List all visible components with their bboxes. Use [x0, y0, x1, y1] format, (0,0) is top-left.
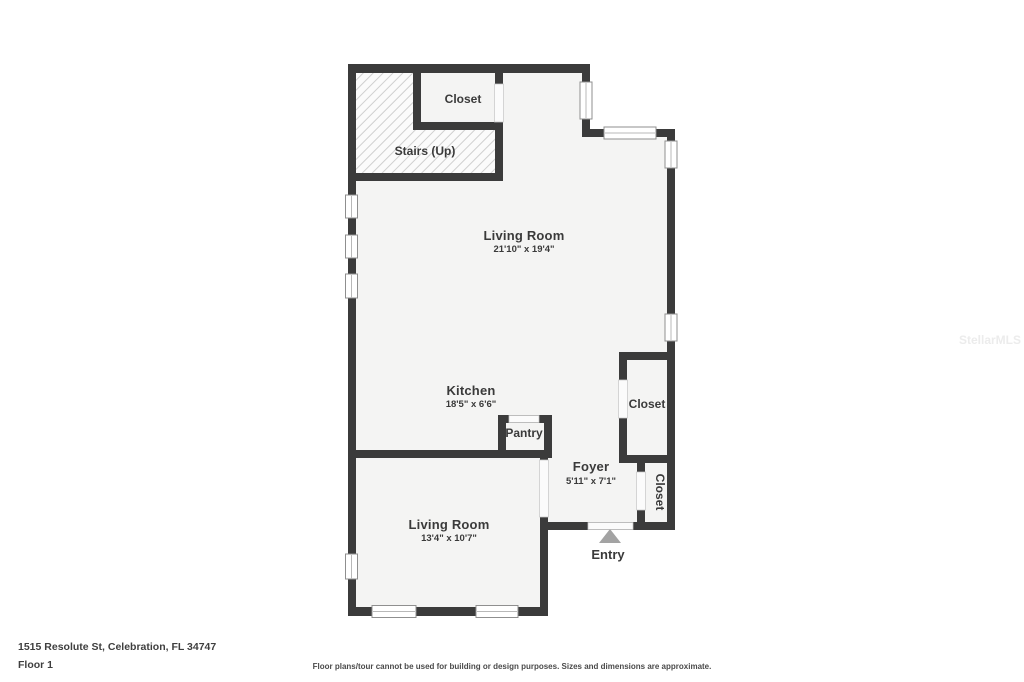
- room-dimensions-living-room-lower: 13'4" x 10'7": [421, 533, 477, 544]
- wall-segment: [348, 173, 503, 181]
- wall-segment: [348, 64, 590, 73]
- door-opening: [637, 472, 646, 510]
- wall-segment: [540, 518, 548, 616]
- window-symbol: [665, 141, 677, 168]
- window-symbol: [346, 274, 358, 298]
- window-symbol: [476, 606, 518, 618]
- room-dimensions-foyer: 5'11" x 7'1": [566, 476, 616, 487]
- window-symbol: [372, 606, 416, 618]
- door-opening: [540, 460, 549, 517]
- entry-arrow-icon: [599, 529, 621, 543]
- floor-label: Floor 1: [18, 659, 53, 671]
- room-label-closet-right: Closet: [629, 397, 666, 411]
- disclaimer-text: Floor plans/tour cannot be used for buil…: [313, 662, 712, 671]
- window-symbol: [580, 82, 592, 119]
- door-opening: [619, 380, 628, 418]
- wall-segment: [619, 455, 675, 463]
- entry-door-opening: [588, 523, 633, 530]
- floor-plan: Closet Stairs (Up) Living Room 21'10" x …: [0, 0, 1024, 682]
- room-dimensions-living-room-upper: 21'10" x 19'4": [493, 244, 554, 255]
- wall-segment: [348, 450, 552, 458]
- room-label-stairs: Stairs (Up): [395, 144, 456, 158]
- entry-label: Entry: [591, 547, 625, 562]
- wall-segment: [619, 352, 675, 360]
- room-label-kitchen: Kitchen: [446, 383, 495, 398]
- room-label-closet-lower: Closet: [653, 474, 667, 511]
- room-label-closet-top: Closet: [445, 92, 482, 106]
- door-opening: [495, 84, 504, 122]
- room-label-living-room-lower: Living Room: [409, 517, 490, 532]
- wall-segment: [413, 122, 503, 130]
- room-dimensions-kitchen: 18'5" x 6'6": [446, 399, 497, 410]
- floor-plan-page: Closet Stairs (Up) Living Room 21'10" x …: [0, 0, 1024, 682]
- mls-watermark: StellarMLS: [959, 333, 1021, 347]
- door-opening: [509, 416, 539, 423]
- wall-segment: [413, 64, 421, 130]
- room-label-foyer: Foyer: [573, 459, 609, 474]
- wall-segment: [348, 64, 356, 616]
- room-label-living-room-upper: Living Room: [484, 228, 565, 243]
- window-symbol: [346, 235, 358, 258]
- address-text: 1515 Resolute St, Celebration, FL 34747: [18, 641, 216, 653]
- window-symbol: [604, 127, 656, 139]
- window-symbol: [346, 554, 358, 579]
- room-label-pantry: Pantry: [505, 426, 543, 440]
- window-symbol: [346, 195, 358, 218]
- window-symbol: [665, 314, 677, 341]
